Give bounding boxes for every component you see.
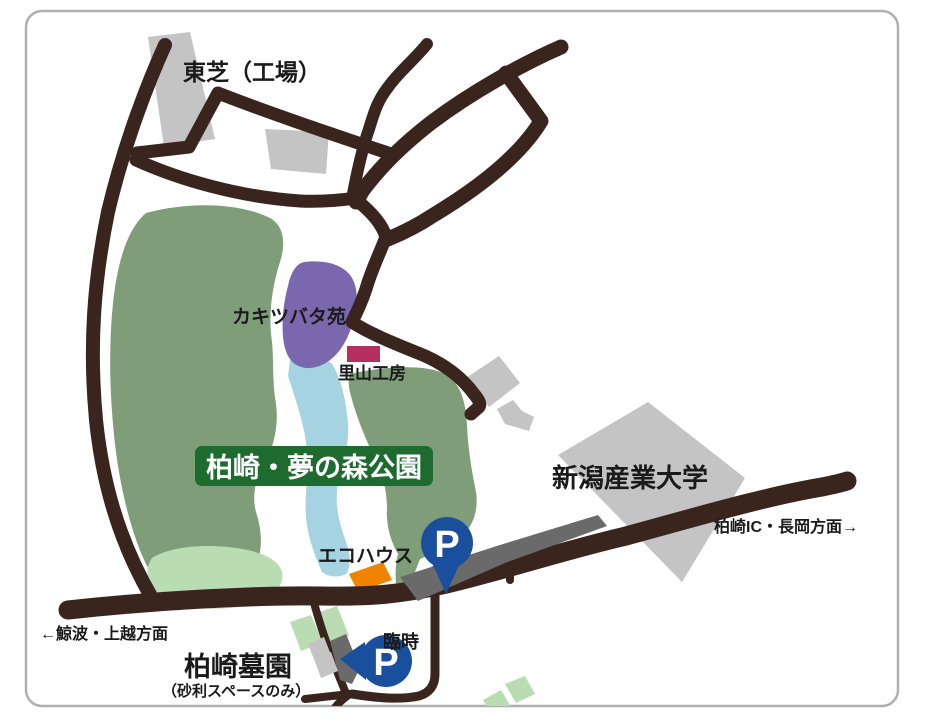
map-canvas: 柏崎・夢の森公園 P P 東芝（工場） カキツバタ苑 里山工房 新潟産業大学 柏… (0, 0, 932, 720)
satoyama-workshop-building (347, 346, 380, 362)
label-ecohouse: エコハウス (318, 545, 413, 567)
label-kakitsubata: カキツバタ苑 (232, 305, 346, 328)
park-name-banner-label: 柏崎・夢の森公園 (206, 453, 422, 483)
label-toshiba: 東芝（工場） (183, 59, 321, 85)
park-area-west (110, 205, 283, 595)
label-kujiranami-direction: ←鯨波・上越方面 (40, 624, 168, 643)
label-satoyama: 里山工房 (338, 363, 406, 383)
label-cemetery: 柏崎墓園 (184, 652, 292, 682)
label-route73: 県道73号線 (179, 608, 261, 627)
label-cemetery-note: （砂利スペースのみ） (162, 682, 310, 700)
parking-pin-main-letter: P (434, 524, 459, 566)
access-map: 柏崎・夢の森公園 P P 東芝（工場） カキツバタ苑 里山工房 新潟産業大学 柏… (0, 0, 932, 720)
label-university: 新潟産業大学 (552, 463, 708, 493)
label-ic-direction: 柏崎IC・長岡方面→ (714, 517, 858, 536)
label-temporary: 臨時 (383, 632, 419, 652)
